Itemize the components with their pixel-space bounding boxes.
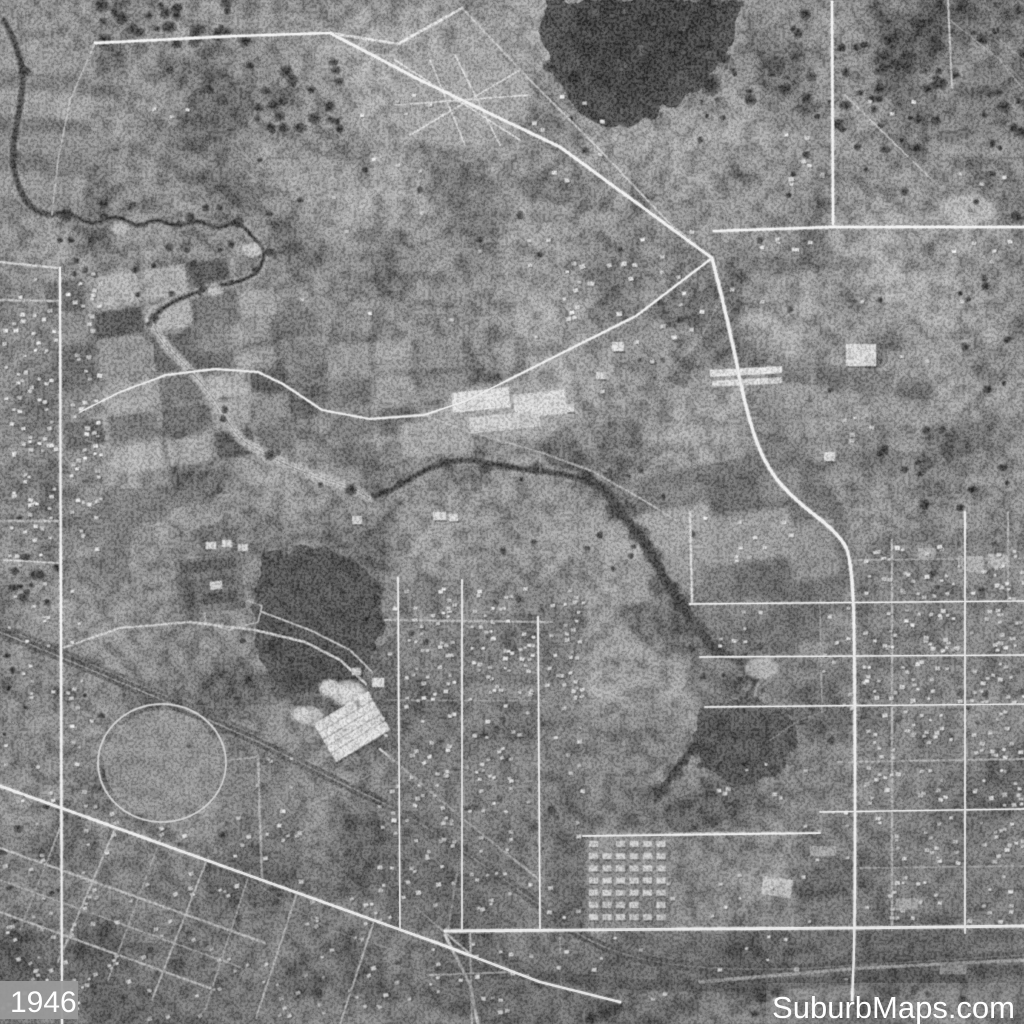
svg-text:1946: 1946 [10,986,77,1019]
svg-text:SuburbMaps.com: SuburbMaps.com [772,990,1015,1024]
